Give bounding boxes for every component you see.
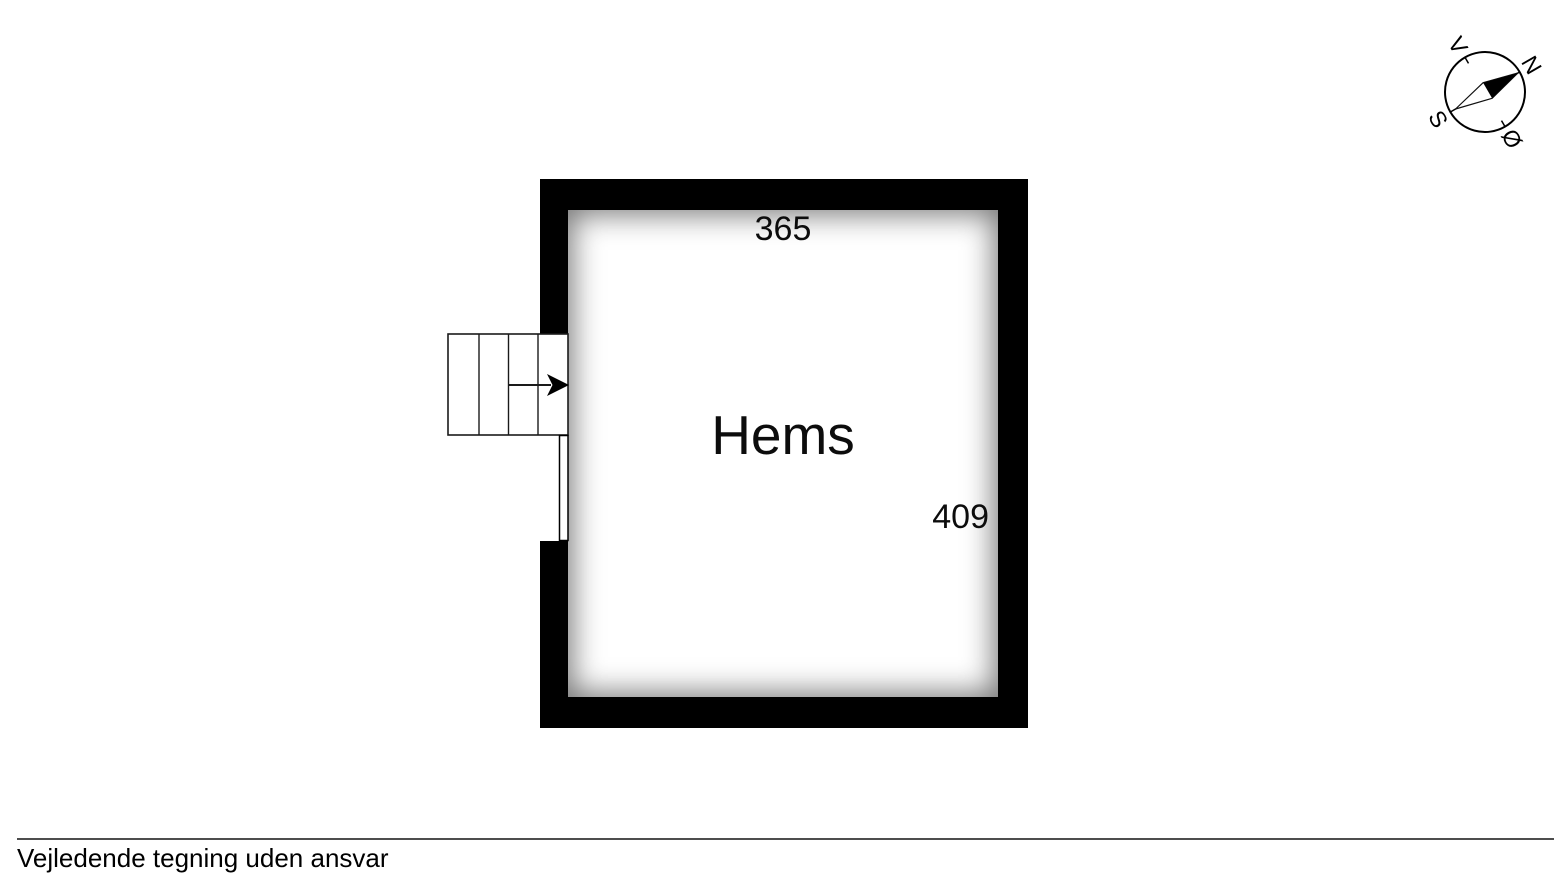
compass-rose: N Ø S V <box>1415 22 1555 162</box>
compass-label-south: S <box>1423 106 1453 132</box>
stair-railing <box>560 436 569 541</box>
dimension-depth-label: 409 <box>568 500 989 534</box>
dimension-width-label: 365 <box>568 212 998 246</box>
footer-divider <box>17 838 1554 840</box>
staircase <box>440 325 575 545</box>
footer-disclaimer: Vejledende tegning uden ansvar <box>17 845 389 871</box>
room-name-label: Hems <box>568 408 998 463</box>
